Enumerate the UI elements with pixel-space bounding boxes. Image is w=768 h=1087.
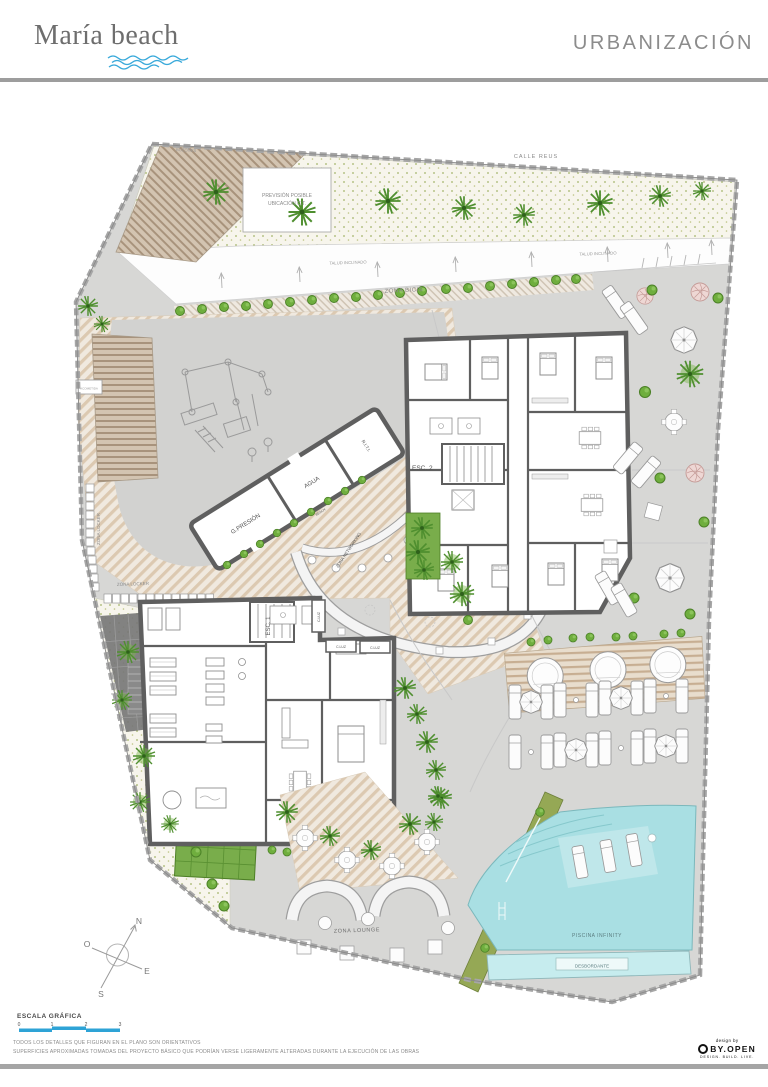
bed-icon xyxy=(548,563,564,585)
flower-table-icon xyxy=(686,464,704,482)
palm-icon xyxy=(203,179,228,204)
bush-icon xyxy=(536,808,545,817)
locker-label-v: ZONA LOCKER xyxy=(96,512,101,545)
scale-tick-3: 3 xyxy=(119,1022,122,1028)
bush-icon xyxy=(264,300,273,309)
bush-icon xyxy=(198,305,207,314)
byopen-tagline: DESIGN. BUILD. LIVE. xyxy=(698,1055,756,1059)
ct-box xyxy=(243,168,331,232)
palm-icon xyxy=(276,801,298,823)
logo-waves-icon xyxy=(106,55,192,70)
dining-table-icon xyxy=(581,494,603,516)
compass-s: S xyxy=(98,989,104,999)
bush-icon xyxy=(677,629,685,637)
bush-icon xyxy=(464,284,473,293)
esc2-label: ESC. 2 xyxy=(412,465,433,472)
bush-icon xyxy=(629,632,637,640)
byopen-circle-icon xyxy=(698,1044,708,1054)
bush-icon xyxy=(256,540,264,548)
tree-icon xyxy=(677,361,703,387)
page-title: URBANIZACIÓN xyxy=(573,32,754,55)
header-rule xyxy=(0,78,768,82)
designer-brand: design by BY.OPEN DESIGN. BUILD. LIVE. xyxy=(698,1038,756,1059)
street-label: CALLE REUS xyxy=(514,154,558,160)
palm-icon xyxy=(649,185,671,207)
compass-o: O xyxy=(84,939,91,949)
bed-icon xyxy=(540,353,556,375)
bush-icon xyxy=(358,476,366,484)
bed-icon xyxy=(492,565,508,587)
disclaimer-line-1: TODOS LOS DETALLES QUE FIGURAN EN EL PLA… xyxy=(13,1040,201,1046)
bush-icon xyxy=(191,847,201,857)
bush-icon xyxy=(308,296,317,305)
umbrella-icon xyxy=(671,327,697,353)
disclaimer-line-2: SUPERFICIES APROXIMADAS TOMADAS DEL PROY… xyxy=(13,1049,419,1055)
bush-icon xyxy=(223,561,231,569)
palm-icon xyxy=(428,786,448,806)
bed-icon xyxy=(482,357,498,379)
flower-table-icon xyxy=(691,283,709,301)
tree-icon xyxy=(161,815,179,833)
ct-label-2: UBICACIÓN C.T. xyxy=(268,200,306,207)
lounger-icon xyxy=(586,683,598,717)
bush-icon xyxy=(685,609,695,619)
umbrella-icon xyxy=(610,687,633,710)
bush-icon xyxy=(286,298,295,307)
palm-icon xyxy=(587,190,612,215)
bush-icon xyxy=(268,846,276,854)
bed-icon xyxy=(596,357,612,379)
bush-icon xyxy=(572,275,581,284)
bush-icon xyxy=(569,634,577,642)
umbrella-icon xyxy=(655,735,678,758)
bush-icon xyxy=(220,303,229,312)
compass-e: E xyxy=(144,966,150,976)
bush-icon xyxy=(352,293,361,302)
bush-icon xyxy=(219,901,229,911)
bush-icon xyxy=(660,630,668,638)
palm-icon xyxy=(320,826,340,846)
scale-bar-segment xyxy=(86,1029,120,1033)
palm-icon xyxy=(394,677,416,699)
buzones-label: BUZONES xyxy=(176,147,197,153)
palm-icon xyxy=(426,760,446,780)
palm-icon xyxy=(693,182,711,200)
bush-icon xyxy=(374,291,383,300)
ct-label-1: PREVISIÓN POSIBLE xyxy=(262,192,313,199)
cluz-label-1: C.LUZ xyxy=(336,645,346,649)
brand-logo: María beach xyxy=(34,20,179,52)
footer-rule xyxy=(0,1064,768,1069)
graphic-scale: ESCALA GRÁFICA 0 1 2 3 xyxy=(17,1011,122,1032)
scale-title: ESCALA GRÁFICA xyxy=(17,1011,82,1020)
tree-icon xyxy=(133,745,155,767)
bed-icon xyxy=(425,364,447,380)
acometida-label: ACOMETIDA xyxy=(80,387,98,391)
desbordante-label: DESBORDANTE xyxy=(575,964,609,969)
bush-icon xyxy=(530,278,539,287)
bush-icon xyxy=(283,848,291,856)
lounger-icon xyxy=(509,735,521,769)
bush-icon xyxy=(699,517,709,527)
bush-icon xyxy=(552,276,561,285)
byopen-name: BY.OPEN xyxy=(710,1044,756,1054)
lounger-icon xyxy=(644,679,656,713)
palm-icon xyxy=(94,316,110,332)
bush-icon xyxy=(324,497,332,505)
design-by-label: design by xyxy=(698,1038,756,1043)
page: CALLE REUS BUZONES PREVISIÓN POSIBLE UBI… xyxy=(0,0,768,1087)
palm-icon xyxy=(414,560,434,580)
bush-icon xyxy=(586,633,594,641)
bush-icon xyxy=(273,529,281,537)
umbrella-icon xyxy=(565,739,588,762)
esc1-label: ESC. 1 xyxy=(266,616,272,636)
bush-icon xyxy=(655,473,665,483)
tree-icon xyxy=(117,641,139,663)
palm-icon xyxy=(411,517,433,539)
bush-icon xyxy=(640,387,651,398)
bush-icon xyxy=(464,616,473,625)
palm-icon xyxy=(406,540,429,563)
palm-icon xyxy=(399,813,421,835)
palm-icon xyxy=(375,188,400,213)
palm-icon xyxy=(78,296,98,316)
lounger-icon xyxy=(554,683,566,717)
palm-icon xyxy=(452,196,475,219)
palm-icon xyxy=(407,704,427,724)
bush-icon xyxy=(527,638,535,646)
lounger-icon xyxy=(631,731,643,765)
daybed-icon xyxy=(649,646,686,683)
piscina-label: PISCINA INFINITY xyxy=(572,933,622,939)
lounger-icon xyxy=(599,731,611,765)
palm-icon xyxy=(513,204,535,226)
bush-icon xyxy=(290,519,298,527)
scale-bar-segment xyxy=(52,1027,86,1031)
compass-n: N xyxy=(136,916,142,926)
bush-icon xyxy=(481,944,490,953)
dining-table-icon xyxy=(579,427,601,449)
bush-icon xyxy=(508,280,517,289)
bush-icon xyxy=(647,285,657,295)
lounger-icon xyxy=(676,679,688,713)
cluz-label-v: C.LUZ xyxy=(317,612,321,622)
bush-icon xyxy=(176,307,185,316)
bush-icon xyxy=(330,294,339,303)
palm-icon xyxy=(425,813,443,831)
palm-icon xyxy=(361,840,381,860)
bush-icon xyxy=(713,293,723,303)
bush-icon xyxy=(544,636,552,644)
tree-icon xyxy=(441,551,463,573)
bush-icon xyxy=(240,550,248,558)
compass: N O E S xyxy=(84,916,150,999)
scale-tick-0: 0 xyxy=(18,1022,21,1028)
umbrella-icon xyxy=(520,691,543,714)
lounger-icon xyxy=(541,735,553,769)
bush-icon xyxy=(341,487,349,495)
site-plan: CALLE REUS BUZONES PREVISIÓN POSIBLE UBI… xyxy=(0,0,768,1087)
scale-bar-segment xyxy=(19,1029,52,1033)
bush-icon xyxy=(612,633,620,641)
left-ramp xyxy=(92,334,158,482)
bush-icon xyxy=(242,302,251,311)
umbrella-icon xyxy=(656,564,685,593)
bush-icon xyxy=(442,285,451,294)
bush-icon xyxy=(207,879,217,889)
bush-icon xyxy=(486,282,495,291)
cluz-label-2: C.LUZ xyxy=(370,646,380,650)
palm-icon xyxy=(416,731,438,753)
tree-icon xyxy=(450,582,474,606)
